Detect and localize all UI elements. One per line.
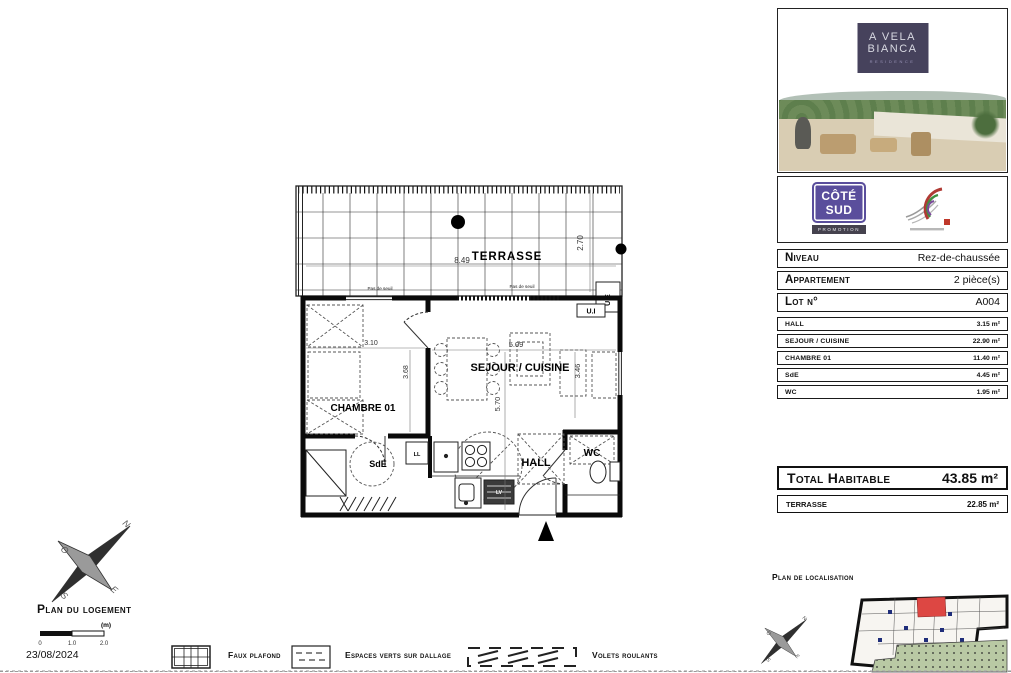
residence-badge: A VELA BIANCA RESIDENCE <box>857 23 928 73</box>
terrace-width-dim: 8.49 <box>454 256 470 265</box>
room-area: 1.95 m² <box>977 389 1000 396</box>
logos-card: CÔTÉ SUD PROMOTION <box>777 176 1008 243</box>
date-label: 23/08/2024 <box>26 649 79 661</box>
room-row: CHAMBRE 01 11.40 m² <box>777 351 1008 365</box>
room-name: SdE <box>785 372 799 379</box>
room-area: 11.40 m² <box>973 355 1000 362</box>
legend-label-espaces-verts: Espaces verts sur dallage <box>345 650 451 660</box>
room-name: WC <box>785 389 797 396</box>
info-value: Rez-de-chaussée <box>918 252 1000 264</box>
total-habitable-value: 43.85 m² <box>942 470 998 486</box>
room-name: HALL <box>785 321 804 328</box>
hall-label: HALL <box>521 457 551 469</box>
terrace-column <box>451 215 465 229</box>
compass-rose: N O E S <box>52 518 133 602</box>
scale-tick-0: 0 <box>38 641 42 647</box>
photo-plant <box>970 106 1002 143</box>
photo-person <box>795 117 811 149</box>
unit-info-table: Niveau Rez-de-chaussée Appartement 2 piè… <box>777 249 1008 315</box>
info-row-appartement: Appartement 2 pièce(s) <box>777 271 1008 290</box>
promoter-name-line1: CÔTÉ <box>812 189 866 203</box>
cote-sud-logo: CÔTÉ SUD PROMOTION <box>812 182 866 234</box>
compass-north: N <box>121 518 133 530</box>
floor-plan-sheet: TERRASSE 8.49 2.70 U.E Pas de seuil Pas … <box>0 0 1011 673</box>
legend-label-volets-roulants: Volets roulants <box>592 650 658 660</box>
photo-furniture <box>911 132 931 156</box>
room-area: 22.90 m² <box>973 338 1000 345</box>
room-row: SdE 4.45 m² <box>777 368 1008 382</box>
legend-swatch-faux-plafond <box>172 646 210 668</box>
chambre-label: CHAMBRE 01 <box>330 403 395 414</box>
chambre-depth-dim: 3.68 <box>403 365 410 379</box>
architect-logo <box>900 183 958 238</box>
room-row: WC 1.95 m² <box>777 385 1008 399</box>
total-habitable-row: Total Habitable 43.85 m² <box>777 466 1008 490</box>
sejour-label: SEJOUR / CUISINE <box>470 362 569 374</box>
compass-east: E <box>109 584 121 596</box>
info-value: 2 pièce(s) <box>954 274 1000 286</box>
total-habitable-label: Total Habitable <box>787 470 890 486</box>
scale-bar: (m) 0 1.0 2.0 <box>38 622 111 647</box>
photo-furniture <box>820 134 856 154</box>
residence-photo <box>779 78 1006 171</box>
terrace-depth-dim: 2.70 <box>576 235 585 251</box>
room-areas-table: HALL 3.15 m² SEJOUR / CUISINE 22.90 m² C… <box>777 317 1008 402</box>
info-label: Lot n° <box>785 296 818 308</box>
sde-label: SdE <box>369 459 387 469</box>
threshold-note-right: Pas de seuil <box>509 284 534 289</box>
info-value: A004 <box>975 296 1000 308</box>
scale-tick-2: 2.0 <box>100 641 109 647</box>
terrasse-label: TERRASSE <box>786 500 827 509</box>
room-area: 4.45 m² <box>977 372 1000 379</box>
legend-label-faux-plafond: Faux plafond <box>228 650 281 660</box>
photo-furniture <box>870 138 897 153</box>
legend-swatch-volets-roulants <box>468 648 576 666</box>
threshold-note-left: Pas de seuil <box>367 286 392 291</box>
residence-subtitle: RESIDENCE <box>857 59 928 64</box>
room-row: SEJOUR / CUISINE 22.90 m² <box>777 334 1008 348</box>
terrace-column <box>616 244 627 255</box>
room-name: SEJOUR / CUISINE <box>785 338 849 345</box>
terrasse-area-row: TERRASSE 22.85 m² <box>777 495 1008 513</box>
sejour-depth-dim: 5.70 <box>493 397 502 412</box>
promoter-name-line2: SUD <box>812 203 866 217</box>
terrasse-value: 22.85 m² <box>967 500 999 509</box>
scale-unit: (m) <box>101 622 111 629</box>
interior-unit-label: U.I <box>587 309 596 316</box>
chambre-width-dim: 3.10 <box>364 340 378 347</box>
washing-machine-label: LL <box>414 452 421 458</box>
dishwasher-label: LV <box>496 490 503 496</box>
info-label: Niveau <box>785 252 819 264</box>
room-row: HALL 3.15 m² <box>777 317 1008 331</box>
scale-tick-1: 1.0 <box>68 641 77 647</box>
residence-name-line2: BIANCA <box>857 43 928 55</box>
sejour-width-dim: 5.09 <box>509 340 524 349</box>
sejour-width2-dim: 3.46 <box>573 364 582 379</box>
room-name: CHAMBRE 01 <box>785 355 831 362</box>
info-row-niveau: Niveau Rez-de-chaussée <box>777 249 1008 268</box>
terrace-area: TERRASSE 8.49 2.70 U.E Pas de seuil Pas … <box>296 186 627 312</box>
info-row-lot: Lot n° A004 <box>777 293 1008 312</box>
architect-logo-graphic <box>900 183 958 233</box>
page-bottom-edge <box>0 671 1011 672</box>
wc-label: WC <box>584 448 601 459</box>
info-panel: A VELA BIANCA RESIDENCE CÔTÉ SUD <box>777 0 1009 673</box>
page-title: Plan du logement <box>37 602 131 616</box>
espaces-verts-hatch <box>340 497 396 511</box>
residence-photo-card: A VELA BIANCA RESIDENCE <box>777 8 1008 173</box>
residence-name-line1: A VELA <box>857 31 928 43</box>
room-area: 3.15 m² <box>977 321 1000 328</box>
promoter-subtitle: PROMOTION <box>812 225 866 234</box>
info-label: Appartement <box>785 274 850 286</box>
entrance-arrow <box>538 521 554 541</box>
legend-swatch-espaces-verts <box>292 646 330 668</box>
terrace-label: TERRASSE <box>472 251 543 263</box>
